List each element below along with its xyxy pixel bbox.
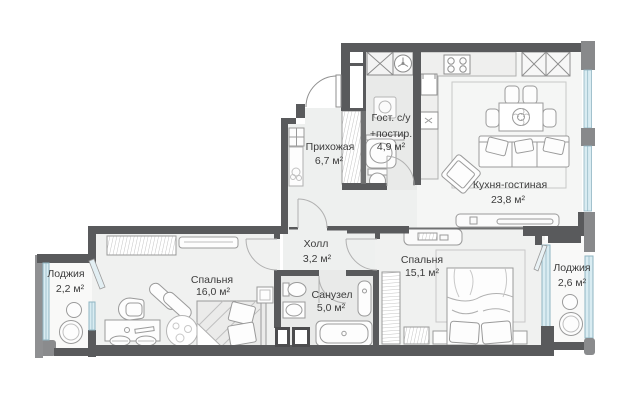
svg-text:3,2 м²: 3,2 м² [303,253,332,265]
svg-text:Гост. с/у: Гост. с/у [372,112,412,124]
svg-text:23,8 м²: 23,8 м² [491,194,526,206]
svg-text:Спальня: Спальня [191,274,233,286]
svg-text:16,0 м²: 16,0 м² [196,286,231,298]
svg-text:Прихожая: Прихожая [306,141,355,153]
svg-text:+постир.: +постир. [370,128,412,140]
svg-text:2,6 м²: 2,6 м² [558,277,587,289]
svg-text:6,7 м²: 6,7 м² [315,155,344,167]
svg-text:Лоджия: Лоджия [47,268,84,280]
svg-text:Лоджия: Лоджия [553,262,590,274]
svg-text:5,0 м²: 5,0 м² [317,302,346,314]
svg-text:2,2 м²: 2,2 м² [56,283,85,295]
svg-text:Санузел: Санузел [312,289,353,301]
svg-text:Спальня: Спальня [401,254,443,266]
svg-text:15,1 м²: 15,1 м² [405,267,440,279]
svg-text:Кухня-гостиная: Кухня-гостиная [473,179,547,191]
svg-text:Холл: Холл [304,238,329,250]
svg-text:4,9 м²: 4,9 м² [377,141,406,153]
